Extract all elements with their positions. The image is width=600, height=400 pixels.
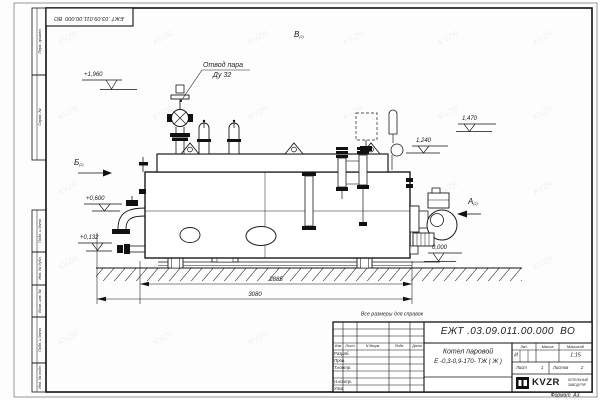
kvzr-logo-text: KVZR [532, 378, 560, 388]
svg-text:KVZR: KVZR [152, 29, 175, 47]
reference-note: Все размеры для справок [361, 312, 423, 317]
top-stamp-number: ЕЖТ .03.09.011.00.000 ВО [54, 14, 124, 20]
svg-text:KVZR: KVZR [57, 179, 80, 197]
svg-text:KVZR: KVZR [247, 329, 270, 347]
side-stamp-vzam-inv: Взам. инв. № [39, 289, 43, 312]
col-izm: Изм [335, 345, 342, 349]
sheets-value: 2 [581, 366, 583, 370]
row-utv: Утв. [334, 387, 344, 391]
row-nkontr: Н.контр. [334, 380, 352, 384]
side-stamp-perv-primen: Перв. примен. [39, 28, 43, 53]
col-ndocum: N докум. [366, 345, 381, 349]
elevation-0600: +0,600 [86, 196, 105, 202]
side-stamp-podp-data-2: Подп. и дата [39, 328, 43, 352]
svg-text:KVZR: KVZR [247, 29, 270, 47]
lit-value: И [514, 354, 518, 359]
manhole-oval [246, 227, 276, 246]
col-list: Лист [345, 345, 354, 349]
sheet-value: 1 [541, 366, 543, 370]
view-label-a: А(2) [468, 198, 478, 207]
format-label: Формат А3 [551, 393, 580, 398]
boiler-side-view [112, 70, 457, 268]
svg-text:KVZR: KVZR [57, 329, 80, 347]
kvzr-logo-icon [516, 377, 529, 389]
row-prov: Пров. [334, 359, 345, 363]
elevation-0132: +0,132 [80, 235, 99, 241]
handhole-oval [180, 228, 200, 243]
gauge-siphon-loop [389, 110, 403, 170]
col-data: Дата [412, 345, 421, 349]
row-razrab: Разраб. [334, 352, 350, 356]
sheet-label: Лист [516, 366, 527, 370]
steam-outlet-note-line1: Отвод пара [203, 62, 243, 69]
dim-overall-length: 3080 [248, 292, 261, 298]
svg-text:KVZR: KVZR [57, 104, 80, 122]
lit-label: Лит. [520, 345, 527, 349]
elevation-1470: 1,470 [462, 116, 477, 122]
safety-valves [197, 120, 241, 154]
scale-value: 1:15 [570, 353, 581, 359]
elevation-1960: +1,960 [84, 72, 103, 78]
side-stamp-sprav-no: Справ. № [39, 108, 43, 125]
svg-text:KVZR: KVZR [437, 104, 460, 122]
elevation-1240: 1,240 [416, 138, 431, 144]
sheets-label: Листов [553, 366, 568, 370]
product-name: Котел паровой [443, 349, 493, 356]
mass-label: Масса [542, 345, 554, 349]
boiler-shell [145, 172, 410, 258]
product-designation: Е -0,3-0,9-170- ТЖ ( Ж ) [434, 359, 502, 365]
kvzr-logo-sub2: ЗАВОД РЭР [568, 384, 586, 387]
svg-text:KVZR: KVZR [247, 104, 270, 122]
svg-text:KVZR: KVZR [57, 254, 80, 272]
view-label-b: Б(2) [74, 159, 84, 168]
steam-outlet-note-line2: Ду 32 [213, 72, 231, 79]
row-tkontr: Т.контр. [334, 366, 351, 370]
side-stamp-inv-dubl: Инв. № дубл. [39, 256, 43, 279]
front-fittings [112, 157, 148, 254]
view-label-v: В(2) [294, 31, 304, 40]
title-doc-number: ЕЖТ .03.09.011.00.000 ВО [441, 327, 575, 337]
elevation-0000: 0,000 [432, 245, 447, 251]
svg-text:KVZR: KVZR [152, 329, 175, 347]
drawing-sheet: KVZRKVZRKVZRKVZRKVZRKVZRKVZRKVZRKVZRKVZR… [0, 0, 600, 400]
svg-text:KVZR: KVZR [437, 29, 460, 47]
dim-shell-length: 2885 [269, 277, 282, 283]
svg-text:KVZR: KVZR [532, 254, 555, 272]
svg-text:KVZR: KVZR [342, 29, 365, 47]
side-stamp-inv-podl: Инв. № подл. [39, 365, 43, 389]
svg-text:KVZR: KVZR [532, 29, 555, 47]
svg-text:KVZR: KVZR [57, 29, 80, 47]
svg-text:KVZR: KVZR [532, 179, 555, 197]
scale-label: Масштаб [567, 345, 584, 349]
svg-text:KVZR: KVZR [532, 104, 555, 122]
hidden-equipment-outline [356, 113, 377, 140]
col-podp: Подп. [395, 345, 405, 349]
steam-drum-plate [157, 154, 388, 172]
side-stamp-podp-data-1: Подп. и дата [39, 219, 43, 243]
kvzr-logo-sub1: КОТЕЛЬНЫЙ [568, 379, 588, 382]
ground [96, 268, 522, 281]
lifting-lugs [181, 143, 380, 154]
